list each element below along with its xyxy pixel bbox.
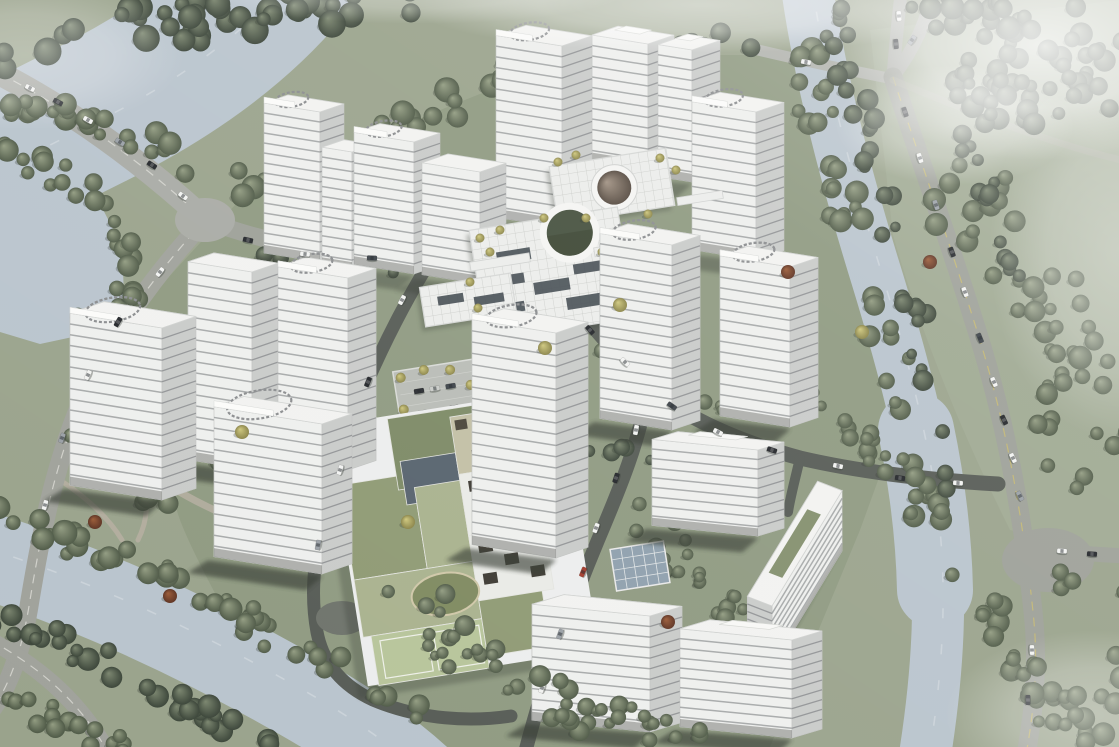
fog-patch <box>835 65 1075 185</box>
aerial-masterplan-rendering <box>0 0 1119 747</box>
rendering-canvas <box>0 0 1119 747</box>
